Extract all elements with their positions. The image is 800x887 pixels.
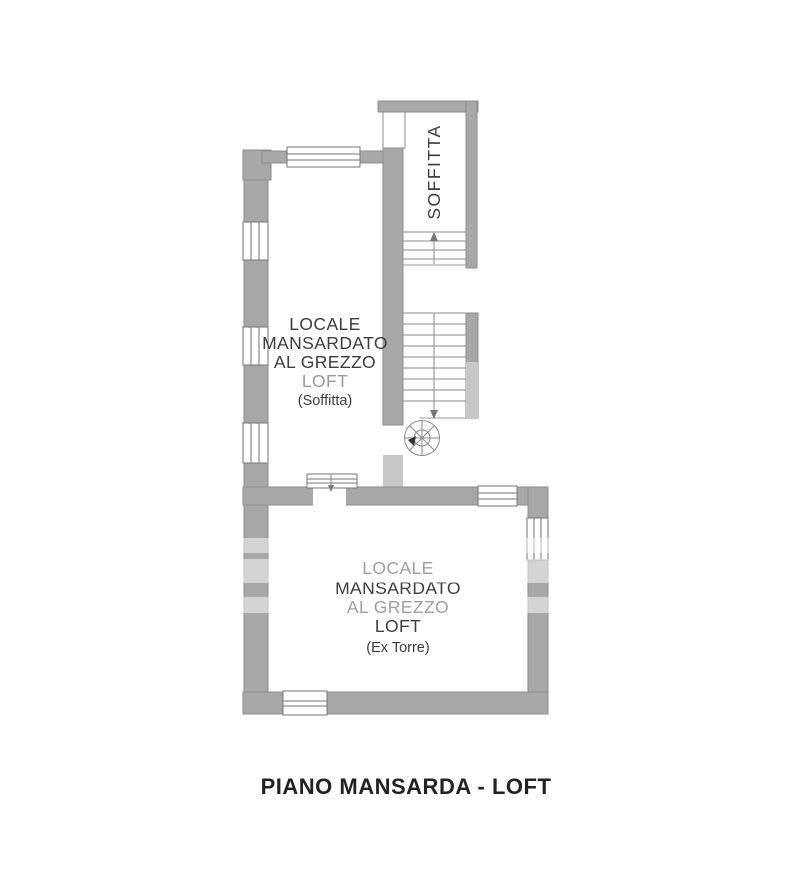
wall-soffitta-right <box>466 101 477 268</box>
window-left-3 <box>243 423 268 463</box>
soffitta-landing <box>383 112 405 148</box>
upper-room-note: (Soffitta) <box>298 393 353 409</box>
window-left-1 <box>243 222 268 260</box>
watermark <box>165 538 565 613</box>
upper-room-line4: LOFT <box>302 371 348 391</box>
lower-room-note: (Ex Torre) <box>366 640 429 656</box>
wall-stair-right-strip-light <box>466 362 478 418</box>
upper-room-line3: AL GREZZO <box>274 352 376 372</box>
soffitta-label-text: SOFFITTA <box>424 124 444 219</box>
plan-title: PIANO MANSARDA - LOFT <box>261 774 552 799</box>
window-separating-wall <box>478 486 517 506</box>
soffitta-room-label: SOFFITTA <box>424 124 444 219</box>
window-top-upper <box>287 147 360 167</box>
wall-center-light-segment <box>383 455 403 487</box>
spiral-staircase <box>405 421 440 456</box>
stairs-soffitta <box>403 232 466 265</box>
upper-room-line1: LOCALE <box>289 314 360 334</box>
stairs-soffitta-up-arrow <box>430 232 438 241</box>
wall-center-vertical <box>383 148 403 425</box>
wall-soffitta-top <box>378 101 478 112</box>
stairs-middle <box>403 313 466 419</box>
upper-room-label: LOCALE MANSARDATO AL GREZZO LOFT (Soffit… <box>262 314 388 409</box>
window-bottom-lower <box>283 691 327 715</box>
floorplan-drawing: SOFFITTA LOCALE MANSARDATO AL GREZZO LOF… <box>0 0 800 887</box>
floorplan-page: SOFFITTA LOCALE MANSARDATO AL GREZZO LOF… <box>0 0 800 887</box>
upper-room-line2: MANSARDATO <box>262 333 388 353</box>
door-opening <box>313 486 346 506</box>
lower-room-line4: LOFT <box>375 616 421 636</box>
